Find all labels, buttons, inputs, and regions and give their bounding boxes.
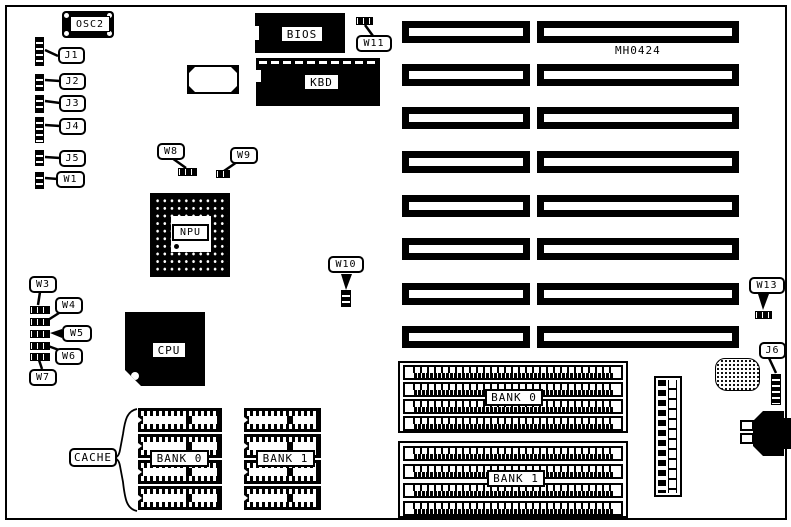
slot-opening-icon	[544, 114, 732, 122]
cache-chip-row	[138, 486, 222, 510]
slot-opening-icon	[544, 28, 732, 36]
slot-opening-icon	[409, 114, 523, 122]
slot-opening-icon	[544, 290, 732, 298]
cpu-label: CPU	[151, 341, 187, 359]
expansion-slot	[402, 195, 530, 217]
callout-j2: J2	[59, 73, 86, 90]
memory-bank1-sockets: BANK 1	[398, 441, 628, 518]
callout-w9: W9	[230, 147, 258, 164]
simm-socket	[403, 365, 623, 380]
jumper-pins-w3	[30, 306, 50, 314]
pins-icon	[141, 476, 219, 481]
simm-contacts-icon	[413, 365, 613, 380]
expansion-slot	[537, 195, 739, 217]
jumper-pins-j6	[771, 374, 781, 405]
slot-opening-icon	[409, 245, 523, 253]
simm-contacts-icon	[413, 446, 613, 461]
slot-opening-icon	[409, 28, 523, 36]
expansion-slot	[537, 21, 739, 43]
cache-bank0-label: BANK 0	[150, 450, 209, 467]
jumper-pins-w9	[216, 170, 230, 178]
slot-opening-icon	[544, 245, 732, 253]
simm-latch-icon	[613, 483, 623, 498]
slot-opening-icon	[544, 158, 732, 166]
osc-pad-icon	[64, 31, 69, 36]
edge-connector	[654, 376, 682, 497]
expansion-slot	[537, 151, 739, 173]
connector-hooks-icon	[658, 380, 666, 493]
header-pins-j2	[35, 74, 44, 91]
simm-socket	[403, 416, 623, 431]
header-pins-j4	[35, 117, 44, 143]
callout-j3: J3	[59, 95, 86, 112]
callout-w8: W8	[157, 143, 185, 160]
jumper-pins-w5	[30, 330, 50, 338]
socket-corner-icon	[231, 86, 237, 92]
simm-latch-icon	[403, 501, 413, 516]
chip-bodies	[247, 416, 318, 424]
simm-latch-icon	[403, 416, 413, 431]
simm-latch-icon	[613, 416, 623, 431]
header-pins-j1	[35, 37, 44, 66]
cache-label: CACHE	[69, 448, 117, 467]
simm-latch-icon	[613, 365, 623, 380]
socket-corner-icon	[231, 67, 237, 73]
pins-icon	[141, 424, 219, 429]
chip-notch-icon	[244, 469, 248, 475]
memory-bank1-label: BANK 1	[487, 470, 545, 487]
simm-latch-icon	[403, 446, 413, 461]
simm-latch-icon	[403, 365, 413, 380]
expansion-slot	[402, 21, 530, 43]
motherboard-diagram: OSC2 J1 J2 J3 J4 J5 W1 BIOS W11 KBD MH04…	[0, 0, 791, 527]
slot-opening-icon	[409, 290, 523, 298]
expansion-slot	[402, 238, 530, 260]
simm-socket	[403, 446, 623, 461]
din-body-icon	[753, 411, 791, 456]
expansion-slot	[537, 238, 739, 260]
simm-latch-icon	[613, 501, 623, 516]
pins-icon	[247, 476, 318, 481]
simm-latch-icon	[613, 382, 623, 397]
callout-j1: J1	[58, 47, 85, 64]
callout-w5: W5	[62, 325, 92, 342]
header-pins-j5	[35, 150, 44, 166]
callout-w1: W1	[56, 171, 85, 188]
socket-corner-icon	[189, 86, 195, 92]
simm-latch-icon	[403, 399, 413, 414]
expansion-slot	[402, 64, 530, 86]
simm-contacts-icon	[413, 416, 613, 431]
slot-opening-icon	[544, 71, 732, 79]
keyboard-din-connector	[740, 411, 791, 457]
chip-bodies	[141, 468, 219, 476]
simm-latch-icon	[403, 464, 413, 479]
chip-bodies	[247, 468, 318, 476]
chip-bodies	[247, 494, 318, 502]
chip-notch-icon	[244, 417, 248, 423]
callout-j6: J6	[759, 342, 786, 359]
callout-w10: W10	[328, 256, 364, 273]
simm-latch-icon	[403, 382, 413, 397]
slot-opening-icon	[409, 158, 523, 166]
simm-latch-icon	[613, 399, 623, 414]
osc-pad-icon	[64, 13, 69, 18]
jumper-pins-w6	[30, 342, 50, 350]
callout-w4: W4	[55, 297, 83, 314]
kbd-label: KBD	[303, 73, 340, 91]
header-pins-j3	[35, 95, 44, 113]
cpu-chip: CPU	[125, 312, 205, 386]
cache-chip-row	[244, 486, 321, 510]
din-tab-icon	[740, 433, 754, 444]
chip-bodies	[141, 494, 219, 502]
chip-notch-icon	[138, 417, 142, 423]
cache-chip-row	[244, 408, 321, 432]
chip-notch-icon	[138, 495, 142, 501]
jumper-pins-w13	[755, 311, 772, 319]
pins-icon	[141, 502, 219, 507]
callout-j5: J5	[59, 150, 86, 167]
oscillator-osc2: OSC2	[62, 11, 114, 38]
memory-bank0-sockets: BANK 0	[398, 361, 628, 433]
slot-opening-icon	[409, 71, 523, 79]
bios-label: BIOS	[280, 25, 324, 43]
cache-bank1-label: BANK 1	[256, 450, 315, 467]
kbd-dashed-line-icon	[259, 61, 377, 64]
jumper-pins-w10	[341, 290, 351, 307]
npu-socket: NPU	[150, 193, 230, 277]
slot-opening-icon	[544, 202, 732, 210]
chip-notch-icon	[256, 70, 261, 82]
din-tab-icon	[740, 420, 754, 431]
connector-cells-icon	[668, 380, 677, 493]
callout-w11: W11	[356, 35, 392, 52]
npu-socket-well: NPU	[171, 216, 211, 252]
expansion-slot	[537, 283, 739, 305]
oscillator-label: OSC2	[70, 16, 110, 32]
simm-latch-icon	[403, 483, 413, 498]
callout-w6: W6	[55, 348, 83, 365]
jumper-pins-w11	[356, 17, 373, 25]
chip-bodies	[141, 442, 219, 450]
expansion-slot	[402, 151, 530, 173]
chip-bodies	[247, 442, 318, 450]
simm-latch-icon	[613, 464, 623, 479]
kbd-chip: KBD	[256, 58, 380, 106]
expansion-slot	[402, 326, 530, 348]
simm-latch-icon	[613, 446, 623, 461]
jumper-pins-w7	[30, 353, 50, 361]
pins-icon	[247, 502, 318, 507]
bios-chip: BIOS	[255, 13, 345, 53]
header-pins-w1	[35, 172, 44, 189]
empty-socket	[187, 65, 239, 94]
expansion-slot	[402, 107, 530, 129]
jumper-pins-w4	[30, 318, 50, 326]
callout-j4: J4	[59, 118, 86, 135]
socket-corner-icon	[189, 67, 195, 73]
simm-contacts-icon	[413, 501, 613, 516]
pin1-dot-icon	[174, 244, 179, 249]
board-part-number: MH0424	[615, 44, 661, 57]
pins-icon	[247, 424, 318, 429]
chip-notch-icon	[244, 495, 248, 501]
expansion-slot	[402, 283, 530, 305]
callout-w3: W3	[29, 276, 57, 293]
chip-notch-icon	[138, 469, 142, 475]
npu-label: NPU	[172, 224, 209, 241]
chip-notch-icon	[255, 26, 259, 40]
slot-opening-icon	[409, 202, 523, 210]
chip-notch-icon	[244, 443, 248, 449]
slot-opening-icon	[409, 333, 523, 341]
expansion-slot	[537, 64, 739, 86]
expansion-slot	[537, 326, 739, 348]
cache-chip-row	[138, 408, 222, 432]
chip-bodies	[141, 416, 219, 424]
simm-socket	[403, 501, 623, 516]
slot-opening-icon	[544, 333, 732, 341]
memory-bank0-label: BANK 0	[485, 389, 543, 406]
jumper-pins-w8	[178, 168, 197, 176]
callout-w7: W7	[29, 369, 57, 386]
expansion-slot	[537, 107, 739, 129]
chip-notch-icon	[138, 443, 142, 449]
component-hatched-pad	[715, 358, 760, 391]
callout-w13: W13	[749, 277, 785, 294]
